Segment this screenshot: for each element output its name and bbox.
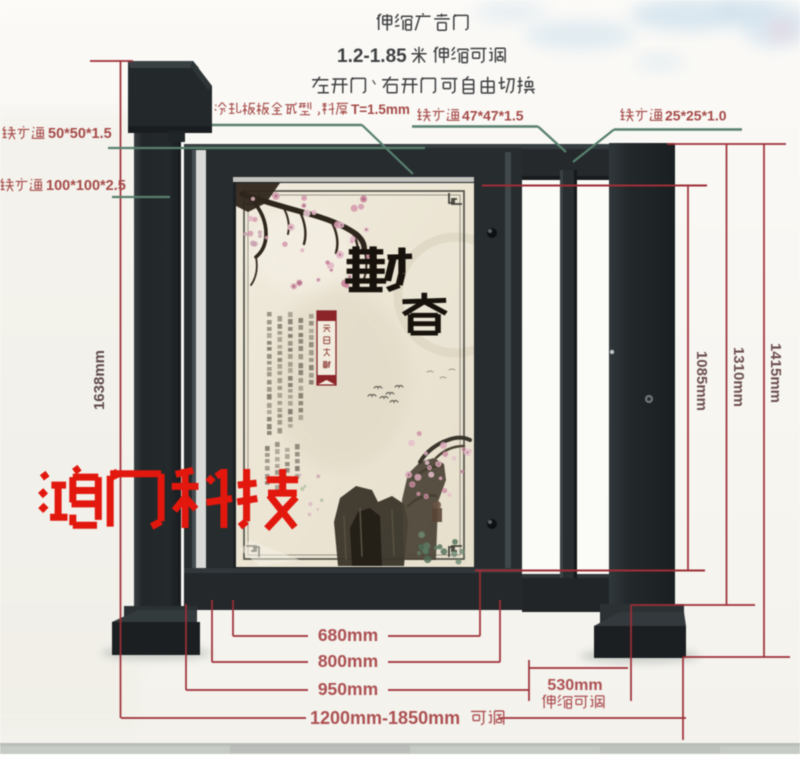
svg-text:T=1.5mm: T=1.5mm: [351, 102, 410, 117]
svg-text:680mm: 680mm: [318, 625, 378, 645]
svg-text:47*47*1.5: 47*47*1.5: [462, 108, 524, 124]
svg-text:1415mm: 1415mm: [767, 343, 784, 403]
svg-text:530mm: 530mm: [547, 677, 602, 694]
svg-text:1310mm: 1310mm: [730, 347, 747, 407]
svg-text:100*100*2.5: 100*100*2.5: [46, 178, 126, 194]
svg-text:50*50*1.5: 50*50*1.5: [48, 126, 112, 142]
svg-text:1200mm-1850mm: 1200mm-1850mm: [310, 708, 460, 728]
svg-text:1085mm: 1085mm: [693, 351, 710, 411]
svg-text:1.2-1.85: 1.2-1.85: [337, 46, 407, 67]
svg-text:25*25*1.0: 25*25*1.0: [665, 108, 727, 124]
svg-text:1638mm: 1638mm: [91, 350, 108, 410]
svg-text:950mm: 950mm: [318, 679, 378, 699]
svg-text:800mm: 800mm: [318, 651, 378, 671]
